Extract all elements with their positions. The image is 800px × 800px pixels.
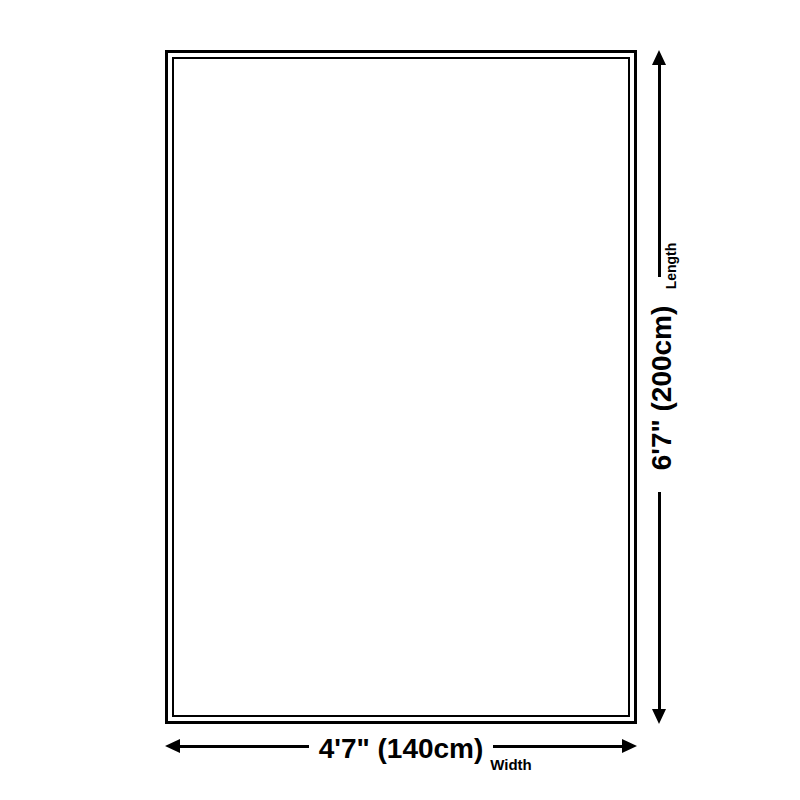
width-arrow-shaft-left — [177, 745, 309, 748]
width-arrow-shaft-right — [493, 745, 623, 748]
arrow-down-icon — [652, 709, 666, 724]
rug-outline-outer — [165, 50, 637, 724]
arrow-right-icon — [622, 739, 637, 753]
length-arrow-shaft-bottom — [658, 492, 661, 710]
length-arrow-shaft-top — [658, 62, 661, 277]
size-diagram: Length 6'7" (200cm) 4'7" (140cm) Width — [0, 0, 800, 800]
length-value: 6'7" (200cm) — [646, 306, 678, 471]
length-label: Length — [663, 243, 679, 290]
width-label: Width — [490, 756, 532, 773]
width-value: 4'7" (140cm) — [319, 733, 484, 765]
rug-outline-inner — [172, 57, 630, 717]
